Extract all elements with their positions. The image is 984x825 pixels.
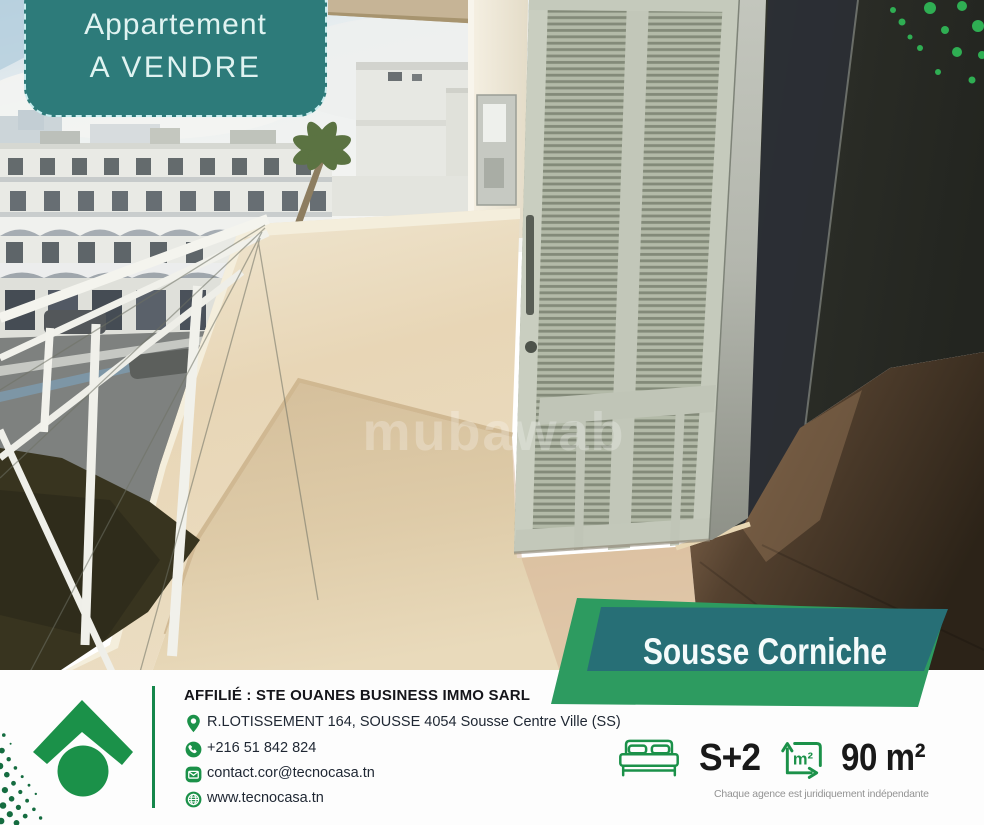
svg-text:m²: m² bbox=[793, 751, 814, 769]
svg-text:mubawab: mubawab bbox=[362, 402, 625, 462]
svg-text:Sousse Corniche: Sousse Corniche bbox=[643, 631, 887, 672]
